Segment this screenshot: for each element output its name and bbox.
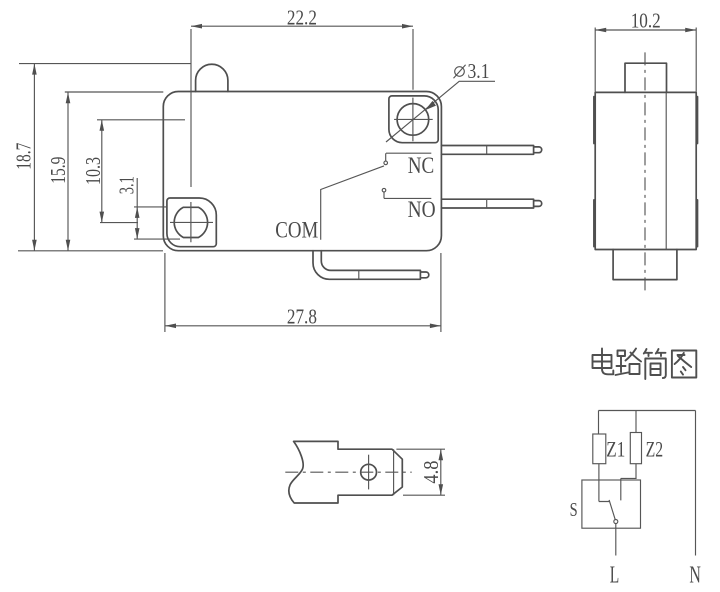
svg-text:27.8: 27.8 (287, 305, 317, 329)
svg-text:18.7: 18.7 (12, 143, 36, 170)
svg-text:S: S (570, 499, 578, 521)
svg-text:Z2: Z2 (646, 436, 664, 461)
svg-text:L: L (610, 562, 620, 588)
svg-text:4.8: 4.8 (419, 461, 443, 484)
svg-text:10.3: 10.3 (81, 157, 105, 185)
svg-text:Z1: Z1 (606, 436, 625, 461)
svg-text:NO: NO (408, 197, 436, 222)
svg-text:3.1: 3.1 (468, 59, 490, 83)
svg-text:22.2: 22.2 (287, 5, 317, 29)
svg-text:15.9: 15.9 (46, 157, 70, 184)
svg-text:COM: COM (275, 217, 318, 242)
svg-text:N: N (689, 562, 701, 588)
svg-text:NC: NC (408, 153, 435, 178)
svg-text:10.2: 10.2 (631, 8, 661, 32)
svg-text:3.1: 3.1 (115, 176, 139, 194)
